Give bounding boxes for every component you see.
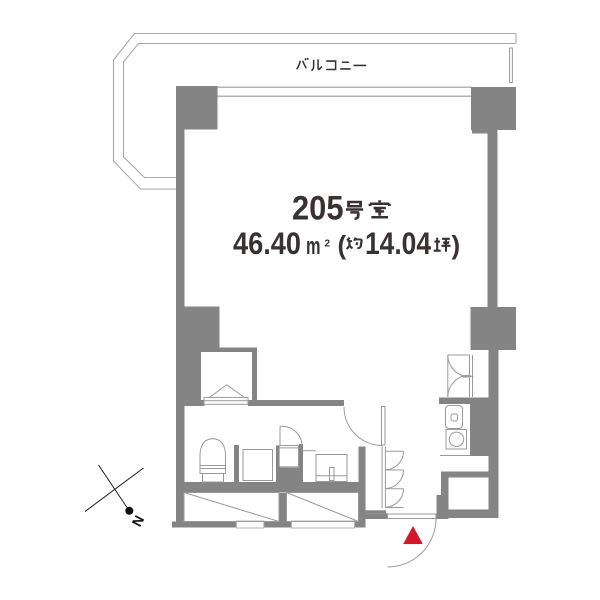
svg-text:): ): [452, 230, 461, 260]
svg-text:(: (: [338, 230, 347, 260]
svg-text:N: N: [129, 513, 148, 529]
svg-text:46.40: 46.40: [233, 225, 301, 261]
svg-text:205: 205: [292, 189, 344, 227]
svg-text:2: 2: [325, 239, 331, 250]
svg-text:14.04: 14.04: [365, 225, 431, 261]
svg-text:m: m: [306, 233, 321, 260]
